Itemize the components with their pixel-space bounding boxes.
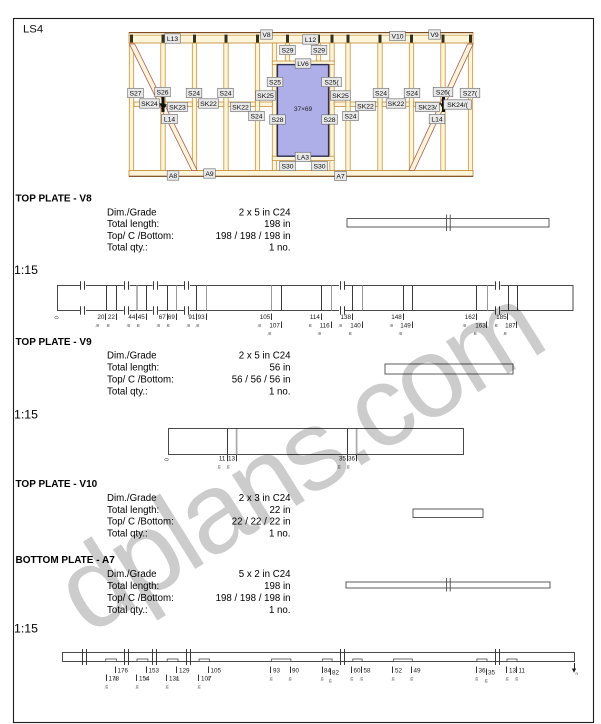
svg-text:Top/ C /Bottom:: Top/ C /Bottom: bbox=[107, 375, 174, 386]
svg-text:198 / 198 / 198 in: 198 / 198 / 198 in bbox=[216, 593, 291, 604]
svg-text:in: in bbox=[307, 323, 312, 327]
svg-text:V10: V10 bbox=[391, 34, 403, 41]
svg-text:58: 58 bbox=[364, 668, 372, 675]
svg-text:129: 129 bbox=[179, 668, 190, 675]
svg-text:S25: S25 bbox=[269, 80, 281, 87]
svg-text:S24: S24 bbox=[219, 91, 231, 98]
svg-text:in: in bbox=[349, 677, 354, 681]
svg-text:Top/ C /Bottom:: Top/ C /Bottom: bbox=[107, 231, 174, 242]
svg-text:LV6: LV6 bbox=[297, 61, 309, 68]
svg-text:69: 69 bbox=[168, 314, 176, 321]
svg-text:1:15: 1:15 bbox=[14, 621, 38, 635]
svg-text:49: 49 bbox=[414, 668, 422, 675]
svg-text:S25(: S25( bbox=[324, 80, 339, 87]
svg-text:93: 93 bbox=[198, 314, 206, 321]
svg-text:A8: A8 bbox=[169, 173, 178, 180]
svg-text:Dim./Grade: Dim./Grade bbox=[107, 351, 157, 362]
svg-text:in: in bbox=[126, 323, 131, 327]
svg-text:1:15: 1:15 bbox=[14, 263, 38, 277]
svg-text:in: in bbox=[165, 323, 170, 327]
svg-text:1 no.: 1 no. bbox=[269, 243, 291, 254]
svg-text:S24: S24 bbox=[406, 91, 418, 98]
svg-text:67: 67 bbox=[159, 314, 167, 321]
svg-text:Total qty.:: Total qty.: bbox=[107, 387, 148, 398]
svg-text:SK22: SK22 bbox=[232, 105, 249, 112]
svg-text:Total length:: Total length: bbox=[107, 219, 159, 230]
svg-text:52: 52 bbox=[395, 668, 403, 675]
svg-text:37×69: 37×69 bbox=[294, 106, 313, 113]
svg-text:in: in bbox=[105, 323, 110, 327]
svg-text:S28: S28 bbox=[323, 117, 335, 124]
svg-text:S29: S29 bbox=[313, 48, 325, 55]
svg-text:107: 107 bbox=[269, 322, 280, 329]
svg-text:Total qty.:: Total qty.: bbox=[107, 243, 148, 254]
svg-text:107: 107 bbox=[201, 676, 212, 683]
svg-text:140: 140 bbox=[350, 322, 361, 329]
svg-text:in: in bbox=[269, 677, 274, 681]
svg-text:11: 11 bbox=[519, 668, 526, 675]
svg-text:105: 105 bbox=[211, 668, 222, 675]
svg-text:in: in bbox=[135, 685, 140, 689]
svg-text:91: 91 bbox=[188, 314, 196, 321]
svg-text:S29: S29 bbox=[281, 48, 293, 55]
svg-text:in: in bbox=[135, 323, 140, 327]
svg-text:in: in bbox=[514, 677, 519, 681]
svg-text:36: 36 bbox=[479, 668, 487, 675]
svg-text:in: in bbox=[186, 323, 191, 327]
svg-text:L13: L13 bbox=[167, 36, 179, 43]
svg-text:S26: S26 bbox=[156, 90, 168, 97]
svg-text:178: 178 bbox=[109, 676, 120, 683]
svg-text:198 in: 198 in bbox=[264, 219, 290, 230]
svg-text:198 / 198 / 198 in: 198 / 198 / 198 in bbox=[216, 231, 291, 242]
svg-text:V8: V8 bbox=[262, 32, 271, 39]
svg-text:in: in bbox=[317, 331, 322, 335]
svg-text:S30: S30 bbox=[281, 164, 293, 171]
svg-text:S24: S24 bbox=[344, 114, 356, 121]
svg-text:in: in bbox=[338, 323, 343, 327]
svg-text:SK25: SK25 bbox=[332, 93, 349, 100]
svg-text:SK24/(: SK24/( bbox=[447, 102, 469, 109]
svg-text:S30: S30 bbox=[313, 164, 325, 171]
svg-text:5 x 2 in C24: 5 x 2 in C24 bbox=[239, 569, 291, 580]
svg-text:L12: L12 bbox=[305, 37, 317, 44]
svg-text:0: 0 bbox=[55, 316, 61, 319]
svg-text:in: in bbox=[484, 679, 489, 683]
svg-text:in: in bbox=[348, 331, 353, 335]
svg-text:44: 44 bbox=[128, 314, 136, 321]
svg-text:154: 154 bbox=[139, 676, 150, 683]
svg-text:SK22: SK22 bbox=[388, 101, 405, 108]
svg-text:2 x 5 in C24: 2 x 5 in C24 bbox=[239, 351, 291, 362]
svg-text:1 no.: 1 no. bbox=[269, 605, 291, 616]
svg-text:LS4: LS4 bbox=[23, 24, 43, 36]
svg-text:Total length:: Total length: bbox=[107, 363, 159, 374]
svg-text:SK23/: SK23/ bbox=[418, 105, 437, 112]
svg-text:45: 45 bbox=[138, 314, 146, 321]
svg-text:in: in bbox=[104, 685, 109, 689]
svg-text:S27: S27 bbox=[129, 91, 141, 98]
svg-text:L14: L14 bbox=[164, 117, 176, 124]
svg-text:in: in bbox=[359, 677, 364, 681]
svg-text:138: 138 bbox=[341, 314, 352, 321]
svg-text:0: 0 bbox=[165, 458, 171, 461]
svg-text:in: in bbox=[391, 677, 396, 681]
svg-text:S27(: S27( bbox=[463, 91, 478, 98]
svg-text:S24: S24 bbox=[250, 114, 262, 121]
svg-text:A7: A7 bbox=[336, 174, 345, 181]
svg-text:S26(: S26( bbox=[436, 90, 451, 97]
svg-text:in: in bbox=[328, 679, 333, 683]
svg-text:105: 105 bbox=[260, 314, 271, 321]
svg-text:SK25: SK25 bbox=[257, 93, 274, 100]
svg-text:SK22: SK22 bbox=[357, 104, 374, 111]
svg-text:93: 93 bbox=[273, 668, 281, 675]
svg-text:Dim./Grade: Dim./Grade bbox=[107, 208, 157, 219]
svg-text:n: n bbox=[576, 671, 579, 676]
svg-text:TOP PLATE - V10: TOP PLATE - V10 bbox=[16, 479, 98, 490]
svg-text:176: 176 bbox=[118, 668, 129, 675]
svg-text:SK22: SK22 bbox=[200, 101, 217, 108]
svg-text:in: in bbox=[197, 685, 202, 689]
svg-text:131: 131 bbox=[169, 676, 180, 683]
svg-text:56 / 56 / 56 in: 56 / 56 / 56 in bbox=[232, 375, 291, 386]
svg-text:60: 60 bbox=[354, 668, 362, 675]
svg-text:2 x 5 in C24: 2 x 5 in C24 bbox=[239, 208, 291, 219]
svg-text:35: 35 bbox=[488, 670, 496, 677]
svg-text:SK23: SK23 bbox=[169, 105, 186, 112]
svg-text:1:15: 1:15 bbox=[14, 407, 38, 421]
svg-text:L14: L14 bbox=[431, 117, 443, 124]
svg-text:90: 90 bbox=[292, 668, 300, 675]
svg-text:22: 22 bbox=[108, 314, 116, 321]
svg-text:S24: S24 bbox=[188, 91, 200, 98]
svg-text:in: in bbox=[257, 323, 262, 327]
svg-text:A9: A9 bbox=[205, 171, 214, 178]
svg-text:116: 116 bbox=[320, 322, 331, 329]
svg-text:SK24: SK24 bbox=[141, 101, 158, 108]
svg-text:56 in: 56 in bbox=[269, 363, 290, 374]
svg-text:82: 82 bbox=[332, 670, 340, 677]
svg-text:114: 114 bbox=[310, 314, 321, 321]
svg-text:TOP PLATE - V8: TOP PLATE - V8 bbox=[16, 194, 93, 205]
svg-text:V9: V9 bbox=[430, 32, 439, 39]
svg-text:in: in bbox=[320, 677, 325, 681]
svg-text:S24: S24 bbox=[375, 91, 387, 98]
svg-text:in: in bbox=[267, 331, 272, 335]
svg-text:in: in bbox=[409, 677, 414, 681]
svg-text:in: in bbox=[156, 323, 161, 327]
svg-text:TOP PLATE - V9: TOP PLATE - V9 bbox=[16, 337, 93, 348]
svg-text:13: 13 bbox=[509, 668, 517, 675]
svg-text:in: in bbox=[165, 685, 170, 689]
svg-text:in: in bbox=[288, 677, 293, 681]
svg-text:S28: S28 bbox=[271, 117, 283, 124]
svg-text:in: in bbox=[195, 323, 200, 327]
svg-text:in: in bbox=[95, 323, 100, 327]
svg-text:in: in bbox=[474, 677, 479, 681]
svg-text:LA3: LA3 bbox=[297, 155, 309, 162]
svg-text:in: in bbox=[505, 677, 510, 681]
svg-text:198 in: 198 in bbox=[264, 581, 290, 592]
svg-text:153: 153 bbox=[149, 668, 160, 675]
svg-text:20: 20 bbox=[97, 314, 105, 321]
